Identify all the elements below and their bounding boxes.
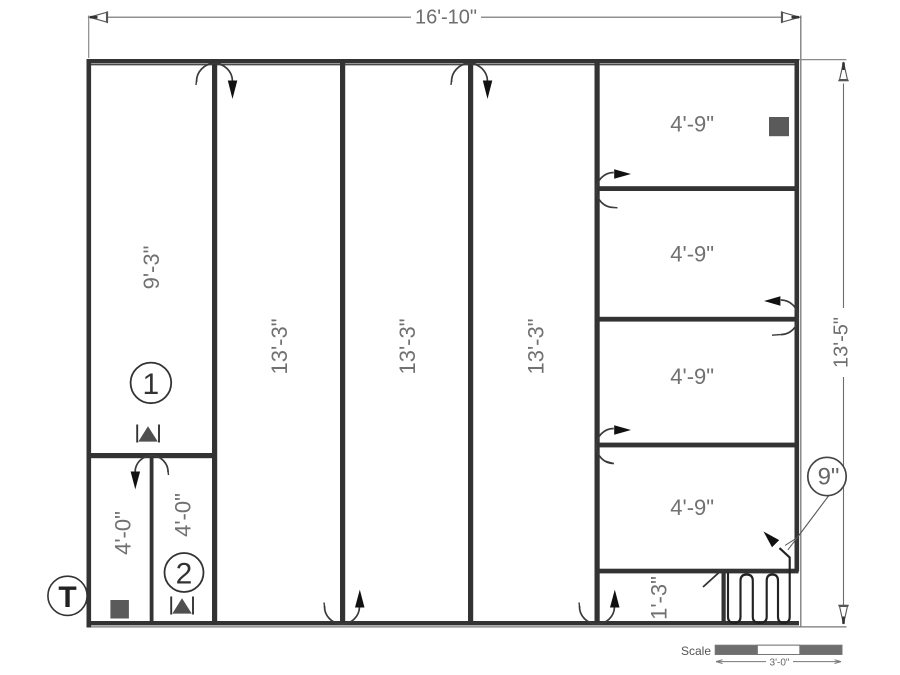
svg-text:4'-9": 4'-9" [670,111,714,136]
svg-text:4'-0": 4'-0" [111,511,136,555]
svg-text:9'-3": 9'-3" [139,246,164,290]
svg-text:16'-10": 16'-10" [415,7,477,29]
svg-text:4'-9": 4'-9" [670,495,714,520]
svg-text:4'-0": 4'-0" [171,493,196,537]
svg-text:4'-9": 4'-9" [670,242,714,267]
svg-text:13'-3": 13'-3" [267,318,292,374]
svg-text:1: 1 [143,368,160,401]
svg-text:T: T [58,581,76,614]
svg-text:3'-0": 3'-0" [770,658,790,669]
svg-text:Scale: Scale [681,644,711,658]
svg-text:2: 2 [176,557,193,590]
svg-text:13'-3": 13'-3" [395,318,420,374]
svg-text:13'-5": 13'-5" [831,317,853,368]
svg-text:1'-3": 1'-3" [647,576,672,620]
svg-text:13'-3": 13'-3" [524,318,549,374]
svg-text:4'-9": 4'-9" [670,364,714,389]
svg-text:9": 9" [818,464,840,491]
